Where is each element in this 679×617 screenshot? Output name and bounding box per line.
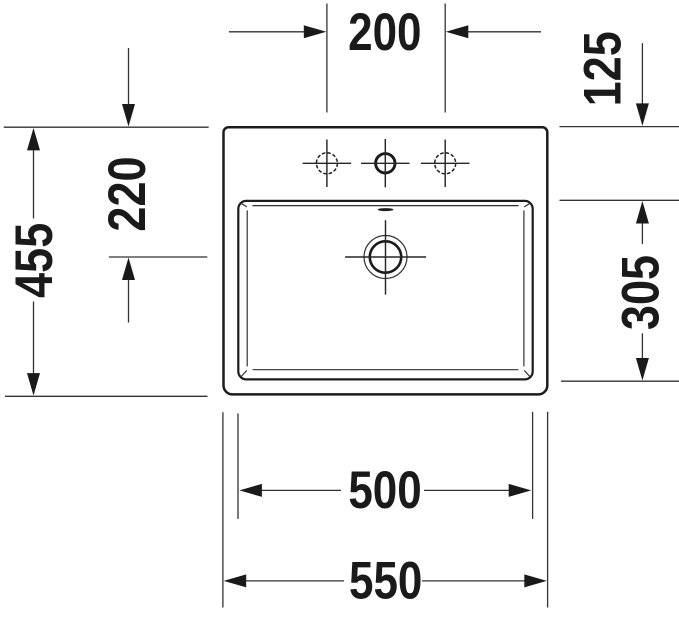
svg-text:500: 500 xyxy=(348,461,421,520)
svg-text:125: 125 xyxy=(573,31,632,106)
svg-text:305: 305 xyxy=(611,255,670,330)
svg-text:220: 220 xyxy=(97,156,156,231)
svg-text:550: 550 xyxy=(349,552,422,611)
svg-text:200: 200 xyxy=(348,3,421,62)
svg-text:455: 455 xyxy=(4,223,63,298)
